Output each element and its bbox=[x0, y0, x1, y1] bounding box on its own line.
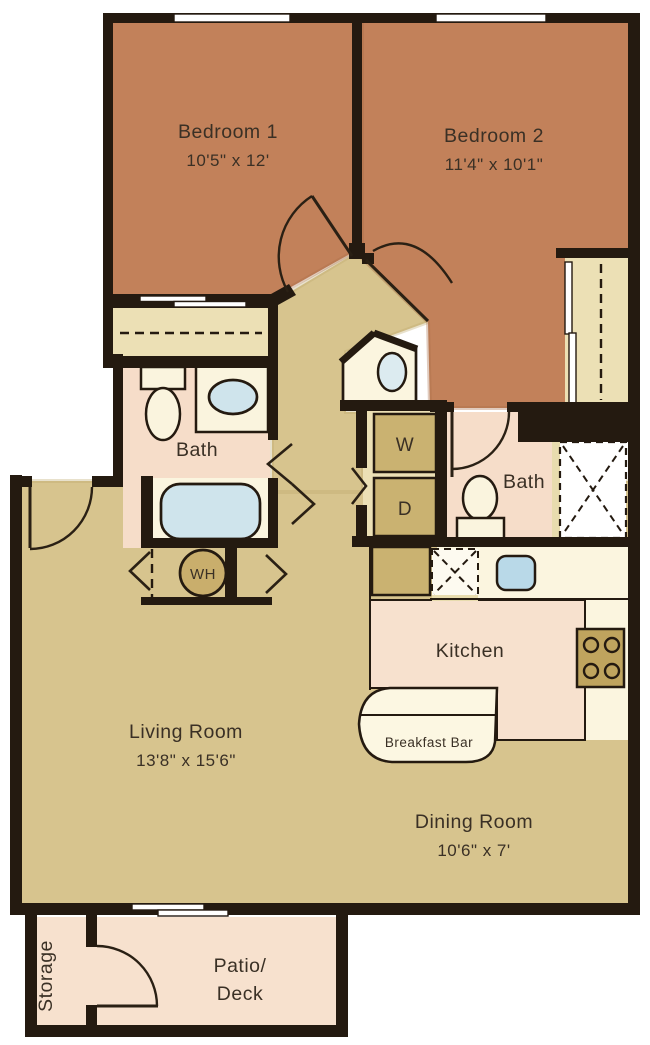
living-label: Living Room bbox=[129, 721, 243, 743]
toilet2-bowl-icon bbox=[463, 476, 497, 520]
floor-plan: W D bbox=[0, 0, 650, 1045]
wall-bottom-main bbox=[10, 903, 640, 915]
bathtub-icon bbox=[161, 484, 260, 539]
wall-entry-stub bbox=[22, 476, 32, 487]
closet2-top-wall bbox=[556, 248, 634, 258]
patio-slider-bar1 bbox=[132, 904, 204, 910]
wall-laundry-left-a bbox=[356, 405, 367, 468]
wall-bath1-left bbox=[113, 354, 123, 487]
wall-right bbox=[628, 13, 640, 915]
floor-plan-canvas: W D bbox=[0, 0, 650, 1045]
wall-bath2-top-right bbox=[507, 402, 520, 412]
patio-label-line1: Patio/ bbox=[214, 955, 267, 977]
wall-left-upper bbox=[103, 13, 113, 368]
wall-bath1-right-upper bbox=[268, 294, 278, 440]
wall-bath1-right-lower bbox=[268, 478, 278, 548]
stove-body bbox=[577, 629, 624, 687]
wall-bedroom-divider bbox=[352, 13, 362, 247]
wh-wall bbox=[225, 548, 237, 600]
bath2-label: Bath bbox=[503, 471, 545, 493]
toilet2-tank-icon bbox=[457, 518, 504, 540]
dining-dims: 10'6" x 7' bbox=[437, 841, 510, 860]
breakfast-bar-label: Breakfast Bar bbox=[385, 735, 473, 750]
patio-label-line2: Deck bbox=[217, 983, 263, 1005]
wall-tub-left bbox=[141, 476, 153, 544]
sink1-icon bbox=[209, 380, 257, 414]
storage-label: Storage bbox=[35, 940, 57, 1012]
wall-patio-bottom bbox=[25, 1025, 348, 1037]
window-icon-bedroom2 bbox=[436, 14, 546, 22]
closet2-slider-bar2 bbox=[569, 333, 576, 403]
shower-curb bbox=[552, 442, 560, 538]
toilet1-tank-icon bbox=[141, 367, 185, 389]
window-icon-bedroom1 bbox=[174, 14, 290, 22]
bedroom2-label: Bedroom 2 bbox=[444, 125, 544, 147]
stove-icon bbox=[577, 629, 624, 687]
wall-bath2-bottom bbox=[435, 537, 628, 547]
wall-left-lower bbox=[10, 475, 22, 915]
toilet1-bowl-icon bbox=[146, 388, 180, 440]
wall-storage-divider-a bbox=[86, 915, 97, 947]
wall-bath2-top-left bbox=[430, 402, 454, 412]
wall-storage-divider-b bbox=[86, 1005, 97, 1037]
kitchen-sink-icon bbox=[497, 556, 535, 590]
closet1-slider-bar2 bbox=[174, 302, 246, 308]
wall-patio-right bbox=[336, 915, 348, 1037]
closet1-slider-bar1 bbox=[140, 296, 206, 302]
wh-front-wall bbox=[141, 597, 272, 605]
wall-closet1-bottom bbox=[103, 356, 278, 368]
patio-slider-bar2 bbox=[158, 910, 228, 916]
closet2-slider-bar1 bbox=[565, 262, 572, 334]
bath1-label: Bath bbox=[176, 439, 218, 461]
breakfast-bar bbox=[359, 688, 497, 762]
dryer-label: D bbox=[398, 499, 412, 520]
wall-laundry-bottom bbox=[352, 536, 447, 547]
wall-laundry-right bbox=[435, 402, 447, 547]
bedroom2-closet bbox=[556, 248, 634, 404]
water-heater-label: WH bbox=[190, 566, 216, 583]
bedroom1-closet bbox=[113, 306, 268, 358]
patio-floor bbox=[33, 917, 342, 1029]
dining-label: Dining Room bbox=[415, 811, 533, 833]
bedroom2-dims: 11'4" x 10'1" bbox=[445, 155, 543, 174]
washer-label: W bbox=[396, 435, 414, 456]
living-dims: 13'8" x 15'6" bbox=[136, 751, 236, 770]
sink2-icon bbox=[378, 353, 406, 391]
bedroom1-dims: 10'5" x 12' bbox=[186, 151, 269, 170]
wall-tub-bottom bbox=[141, 538, 278, 548]
wall-mass bbox=[518, 402, 630, 442]
kitchen-label: Kitchen bbox=[436, 640, 505, 662]
wall-entry-right bbox=[92, 476, 123, 487]
bedroom1-label: Bedroom 1 bbox=[178, 121, 278, 143]
kitchen-cabinet-icon bbox=[372, 547, 430, 595]
breakfast-bar-shape bbox=[359, 688, 497, 762]
